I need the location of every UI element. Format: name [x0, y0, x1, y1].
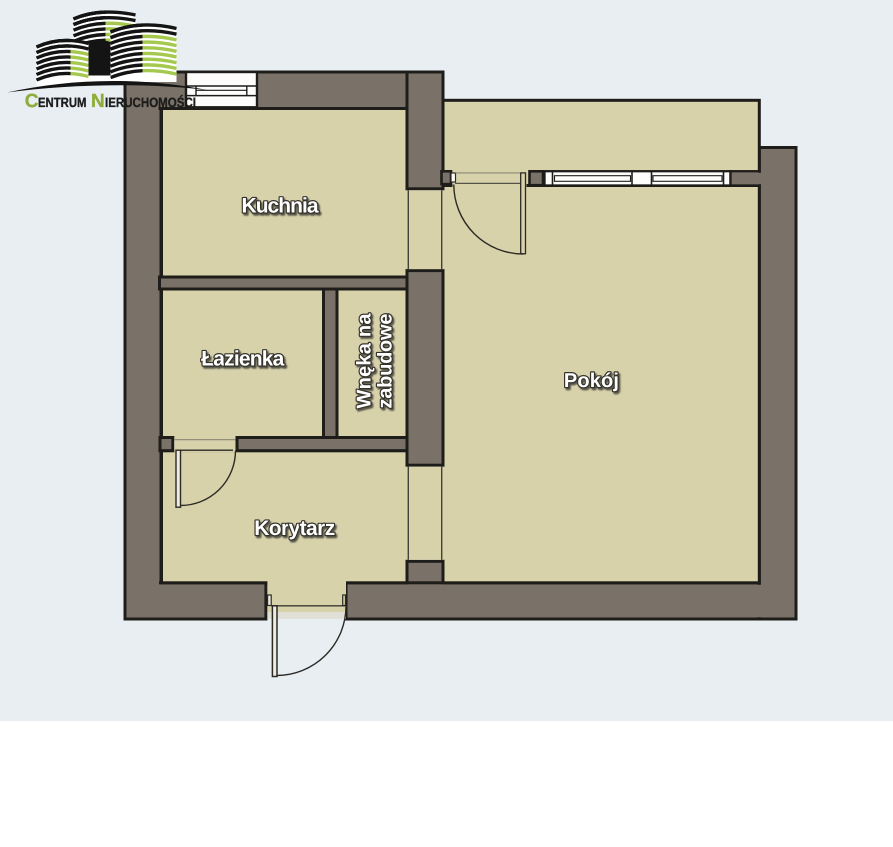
svg-text:CENTRUMNIERUCHOMOŚCI: CENTRUMNIERUCHOMOŚCI	[25, 91, 196, 112]
svg-text:Łazienka: Łazienka	[201, 348, 284, 371]
svg-text:Pokój: Pokój	[564, 370, 619, 392]
svg-text:Kuchnia: Kuchnia	[242, 195, 319, 218]
svg-text:Wnęka na: Wnęka na	[354, 313, 376, 409]
svg-text:zabudowe: zabudowe	[375, 314, 397, 409]
svg-text:Korytarz: Korytarz	[254, 517, 335, 540]
